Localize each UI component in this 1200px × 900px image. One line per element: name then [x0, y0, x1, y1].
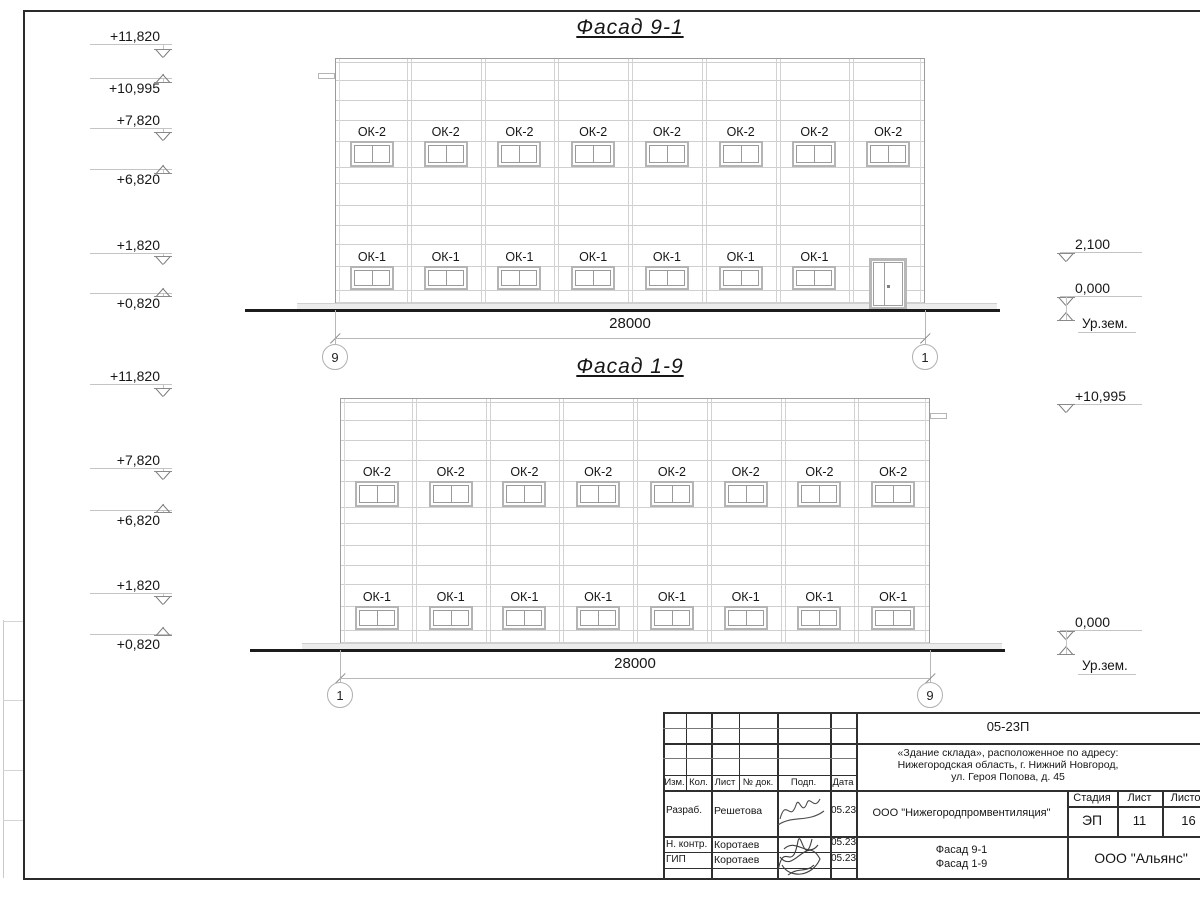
bay-joint-line	[490, 399, 491, 649]
window-mullion	[524, 611, 525, 625]
window-label: ОК-1	[345, 590, 409, 604]
elevation-mark-text: +10,995	[1075, 388, 1145, 404]
bay-joint-line	[416, 399, 417, 649]
window-pane-frame	[801, 485, 837, 503]
window-label: ОК-1	[714, 590, 778, 604]
stamp-line	[663, 775, 856, 776]
stamp-date: 05.23	[831, 853, 854, 864]
stamp-line	[663, 712, 665, 880]
window-mullion	[598, 611, 599, 625]
window-label: ОК-1	[492, 590, 556, 604]
panel-joint-line	[341, 630, 929, 631]
window-mullion	[746, 486, 747, 502]
bay-joint-line	[785, 399, 786, 649]
elevation-arrow-tick	[1057, 404, 1075, 405]
window-mullion	[598, 486, 599, 502]
edge-joint-line	[344, 399, 345, 649]
stamp-listov-value: 16	[1162, 813, 1200, 828]
elevation-mark-text: +11,820	[88, 368, 160, 384]
window-mullion	[524, 486, 525, 502]
window-label: ОК-2	[566, 465, 630, 479]
window-pane-frame	[433, 610, 469, 626]
elevation-arrow-tick	[154, 512, 172, 513]
window-pane-frame	[654, 485, 690, 503]
window-ok2	[724, 481, 768, 507]
window-label: ОК-1	[861, 590, 925, 604]
window-mullion	[746, 611, 747, 625]
elevation-shelf-line	[90, 593, 172, 594]
elevation-arrow-leg	[163, 471, 171, 480]
elevation-mark-text: +6,820	[88, 512, 160, 528]
stamp-line	[1067, 806, 1200, 808]
stamp-doc-number: 05-23П	[856, 719, 1160, 734]
window-label: ОК-1	[419, 590, 483, 604]
stamp-header-doc: № док.	[739, 777, 777, 788]
dimension-text: 28000	[340, 655, 930, 672]
stamp-role: Разраб.	[666, 805, 702, 816]
window-ok2	[355, 481, 399, 507]
stamp-line	[663, 743, 1200, 745]
window-label: ОК-2	[787, 465, 851, 479]
window-pane-frame	[506, 485, 542, 503]
ground-level-shelf	[1078, 674, 1136, 675]
elevation-arrow-tick	[1057, 654, 1075, 655]
elevation-arrow-leg	[1066, 631, 1074, 640]
bay-joint-line	[412, 399, 413, 649]
axis-bubble: 9	[917, 682, 943, 708]
window-mullion	[451, 611, 452, 625]
stamp-org: ООО "Нижегородпромвентиляция"	[872, 807, 1050, 819]
gutter-stub	[930, 413, 947, 419]
elevation-arrow-tick	[154, 635, 172, 636]
bay-joint-line	[781, 399, 782, 649]
elevation-arrow-leg	[1066, 404, 1074, 413]
bay-joint-line	[637, 399, 638, 649]
window-label: ОК-2	[419, 465, 483, 479]
panel-joint-line	[341, 545, 929, 546]
window-pane-frame	[801, 610, 837, 626]
window-label: ОК-1	[640, 590, 704, 604]
bay-joint-line	[633, 399, 634, 649]
window-mullion	[672, 611, 673, 625]
window-ok1	[871, 606, 915, 630]
elevation-mark-text: +7,820	[88, 452, 160, 468]
stamp-stage-value: ЭП	[1067, 812, 1117, 828]
elevation-arrow-stub	[163, 468, 164, 471]
window-ok2	[502, 481, 546, 507]
window-pane-frame	[359, 610, 395, 626]
window-ok2	[797, 481, 841, 507]
window-ok1	[502, 606, 546, 630]
stamp-line	[663, 852, 856, 853]
window-ok1	[429, 606, 473, 630]
window-pane-frame	[875, 485, 911, 503]
stamp-listov-header: Листов	[1162, 792, 1200, 804]
elevation-mark-text: +1,820	[88, 577, 160, 593]
stamp-name: Коротаев	[714, 854, 759, 866]
stamp-name: Коротаев	[714, 839, 759, 851]
window-pane-frame	[728, 610, 764, 626]
window-mullion	[377, 611, 378, 625]
stamp-header-data: Дата	[830, 777, 856, 788]
axis-bubble: 1	[327, 682, 353, 708]
panel-joint-line	[341, 507, 929, 508]
panel-joint-line	[341, 440, 929, 441]
window-pane-frame	[580, 610, 616, 626]
bay-joint-line	[854, 399, 855, 649]
elevation-arrow-stub	[163, 510, 164, 512]
elevation-shelf-line	[90, 510, 172, 511]
bay-joint-line	[711, 399, 712, 649]
stamp-address-line: «Здание склада», расположенное по адресу…	[856, 747, 1160, 759]
elevation-shelf-line	[90, 384, 172, 385]
drawing-sheet: { "facades": [ { "name": "facade-9-1", "…	[0, 0, 1200, 900]
window-mullion	[451, 486, 452, 502]
elevation-arrow-tick	[154, 388, 172, 389]
elevation-arrow-stub	[163, 593, 164, 596]
stamp-company-cell: ООО "Альянс"	[1067, 836, 1200, 880]
edge-joint-line	[925, 399, 926, 649]
stamp-line	[663, 712, 1200, 714]
elevation-arrow-stub	[1066, 630, 1067, 654]
window-mullion	[893, 486, 894, 502]
stamp-line	[663, 728, 856, 729]
window-pane-frame	[506, 610, 542, 626]
facade-title: Фасад 1-9	[510, 355, 750, 379]
panel-joint-line	[341, 402, 929, 403]
window-ok1	[650, 606, 694, 630]
elevation-arrow-stub	[163, 384, 164, 388]
window-pane-frame	[728, 485, 764, 503]
ground-level-label: Ур.зем.	[1082, 658, 1142, 673]
dimension-line	[340, 678, 930, 679]
bay-joint-line	[559, 399, 560, 649]
stamp-sheet-title-line: Фасад 9-1	[856, 844, 1067, 856]
stamp-org-cell: ООО "Нижегородпромвентиляция"	[856, 790, 1067, 836]
elevation-shelf-line	[90, 468, 172, 469]
window-pane-frame	[875, 610, 911, 626]
stamp-line	[663, 758, 856, 759]
bay-joint-line	[563, 399, 564, 649]
stamp-line	[663, 868, 856, 869]
elevation-mark-text: 0,000	[1075, 614, 1145, 630]
window-label: ОК-2	[492, 465, 556, 479]
stamp-company: ООО "Альянс"	[1094, 850, 1188, 866]
window-ok2	[871, 481, 915, 507]
window-ok2	[650, 481, 694, 507]
window-mullion	[377, 486, 378, 502]
window-mullion	[672, 486, 673, 502]
stamp-date: 05.23	[831, 805, 854, 816]
stamp-header-podp: Подп.	[777, 777, 830, 788]
stamp-header-kol: Кол.	[686, 777, 711, 788]
window-pane-frame	[654, 610, 690, 626]
stamp-role: Н. контр.	[666, 839, 707, 850]
elevation-mark-text: +0,820	[88, 636, 160, 652]
stamp-list-value: 11	[1117, 813, 1162, 828]
window-mullion	[893, 611, 894, 625]
stamp-role: ГИП	[666, 854, 686, 865]
stamp-address-line: Нижегородская область, г. Нижний Новгоро…	[856, 759, 1160, 771]
window-label: ОК-2	[714, 465, 778, 479]
window-label: ОК-2	[861, 465, 925, 479]
stamp-header-list: Лист	[711, 777, 739, 788]
stamp-line	[711, 712, 713, 880]
window-ok2	[576, 481, 620, 507]
window-ok1	[724, 606, 768, 630]
signature-kontr-gip	[770, 829, 826, 879]
window-ok1	[797, 606, 841, 630]
bay-joint-line	[486, 399, 487, 649]
elevation-arrow-leg	[163, 596, 171, 605]
signature-razrab	[774, 789, 828, 833]
stamp-header-izm: Изм.	[663, 777, 686, 788]
window-pane-frame	[359, 485, 395, 503]
stamp-name: Решетова	[714, 805, 762, 817]
stamp-date: 05.23	[831, 837, 854, 848]
panel-joint-line	[341, 565, 929, 566]
window-mullion	[819, 486, 820, 502]
window-label: ОК-2	[640, 465, 704, 479]
stamp-stage-header: Стадия	[1067, 792, 1117, 804]
stamp-list-header: Лист	[1117, 792, 1162, 804]
window-pane-frame	[433, 485, 469, 503]
window-label: ОК-1	[787, 590, 851, 604]
window-label: ОК-1	[566, 590, 630, 604]
window-mullion	[819, 611, 820, 625]
ground-line	[250, 649, 1005, 652]
elevation-arrow-leg	[163, 388, 171, 397]
panel-joint-line	[341, 460, 929, 461]
panel-joint-line	[341, 523, 929, 524]
window-ok1	[576, 606, 620, 630]
panel-joint-line	[341, 584, 929, 585]
window-pane-frame	[580, 485, 616, 503]
elevation-arrow-tick	[154, 471, 172, 472]
bay-joint-line	[858, 399, 859, 649]
window-ok1	[355, 606, 399, 630]
bay-joint-line	[707, 399, 708, 649]
panel-joint-line	[341, 420, 929, 421]
elevation-arrow-tick	[154, 596, 172, 597]
stamp-sheet-title-line: Фасад 1-9	[856, 858, 1067, 870]
stamp-address-line: ул. Героя Попова, д. 45	[856, 771, 1160, 783]
window-label: ОК-2	[345, 465, 409, 479]
window-ok2	[429, 481, 473, 507]
